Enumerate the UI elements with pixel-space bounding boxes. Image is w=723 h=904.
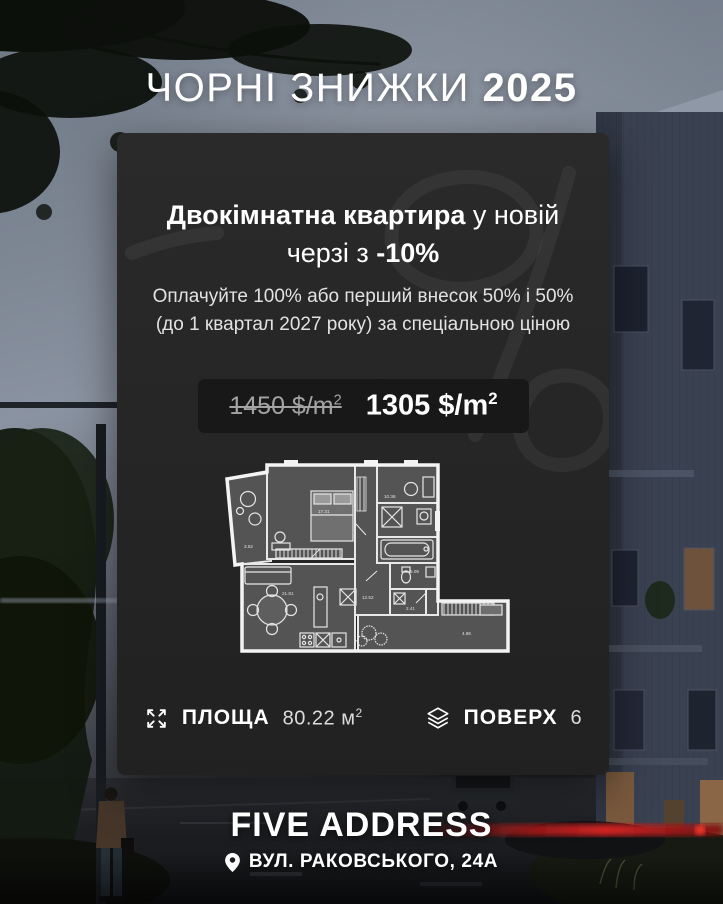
label-balcony: 3.62: [244, 544, 253, 549]
heading-bold: Двокімнатна квартира: [167, 200, 466, 230]
floor-label: ПОВЕРХ: [464, 706, 558, 730]
brand-logo: FIVE ADDRESS: [0, 806, 723, 845]
area-value-text: 80.22 м: [283, 707, 356, 729]
old-price-sup: 2: [334, 392, 342, 408]
new-price: 1305 $/m2: [366, 389, 498, 423]
heading-line2: черзі з: [287, 238, 377, 268]
title-year: 2025: [483, 66, 578, 110]
label-loggia: 4.86: [462, 631, 471, 636]
label-bedroom: 17.31: [318, 509, 330, 514]
price-box: 1450 $/m2 1305 $/m2: [198, 379, 529, 433]
heading-discount: -10%: [376, 238, 439, 268]
area-value-sup: 2: [355, 706, 362, 720]
address-text: ВУЛ. РАКОВСЬКОГО, 24А: [249, 851, 498, 873]
label-wc: 2.41: [406, 606, 415, 611]
area-stat: ПЛОЩА 80.22 м2: [144, 706, 363, 731]
label-bath: 5.09: [410, 569, 419, 574]
label-corridor: 12.52: [362, 595, 374, 600]
address-row: ВУЛ. РАКОВСЬКОГО, 24А: [0, 851, 723, 873]
new-price-sup: 2: [488, 389, 497, 408]
old-price: 1450 $/m2: [229, 392, 341, 421]
floor-value: 6: [570, 707, 582, 730]
location-pin-icon: [225, 853, 240, 872]
label-hall: 10.36: [384, 494, 396, 499]
floor-stat: ПОВЕРХ 6: [425, 705, 582, 731]
expand-icon: [144, 706, 169, 731]
room-shower: [377, 503, 438, 537]
window-hatch: [357, 477, 366, 511]
floor-plan: 3.62 17.31 10.36 5.09 12.52 2.41 21.81 4…: [214, 453, 512, 667]
title-text: ЧОРНІ ЗНИЖКИ: [146, 66, 470, 110]
area-value: 80.22 м2: [283, 706, 363, 731]
label-living: 21.81: [282, 591, 294, 596]
card-heading: Двокімнатна квартира у новій черзі з -10…: [127, 196, 599, 272]
area-label: ПЛОЩА: [182, 706, 270, 730]
page-title: ЧОРНІ ЗНИЖКИ 2025: [0, 66, 723, 111]
stats-row: ПЛОЩА 80.22 м2 ПОВЕРХ 6: [117, 705, 609, 731]
entry-nook: [426, 589, 438, 615]
promo-poster: ЧОРНІ ЗНИЖКИ 2025 Двокімнатна квартира у…: [0, 0, 723, 904]
new-price-text: 1305 $/m: [366, 390, 489, 422]
layers-icon: [425, 705, 451, 731]
card-description: Оплачуйте 100% або перший внесок 50% і 5…: [139, 283, 587, 339]
old-price-text: 1450 $/m: [229, 392, 333, 420]
heading-regular: у новій: [465, 200, 559, 230]
building-facade: [596, 90, 723, 904]
promo-card: Двокімнатна квартира у новій черзі з -10…: [117, 133, 609, 775]
